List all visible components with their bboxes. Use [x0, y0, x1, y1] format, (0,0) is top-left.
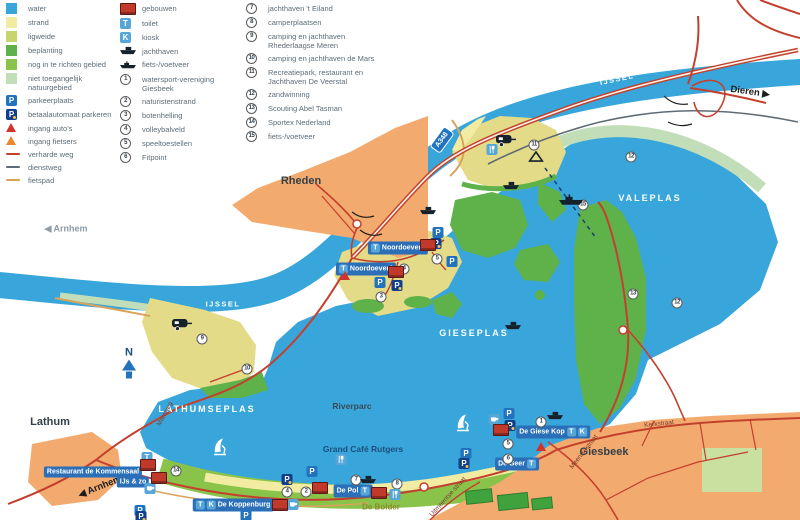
label-lathum: Lathum [30, 416, 70, 428]
north-arrow-icon [122, 360, 136, 371]
label-dieren: Dieren ▶ [730, 84, 771, 100]
parking-icon: P [375, 277, 386, 288]
chip-text: Noordoever2 [382, 245, 425, 252]
toilet-icon: T [527, 460, 536, 469]
building-icon [272, 499, 288, 511]
map-icon-windsurf [212, 438, 228, 461]
label-rheden: Rheden [281, 175, 321, 187]
map-icon-fork [390, 486, 401, 504]
map-icon-cup [288, 496, 299, 514]
map-marker-12: 12 [626, 152, 637, 163]
parking-icon: P [241, 510, 252, 520]
harbor-boat-icon [505, 321, 521, 330]
map-icon-p: P [307, 461, 318, 479]
building-icon [493, 424, 509, 436]
map-marker-6: 6 [503, 454, 514, 465]
map-marker-3: 3 [376, 292, 387, 303]
map-marker-12: 12 [672, 298, 683, 309]
windsurfer-icon [455, 414, 471, 432]
harbor-boat-icon [360, 475, 376, 484]
car-entrance-icon [536, 442, 546, 451]
kiosk-icon: K [207, 501, 216, 510]
cafe-icon [288, 499, 299, 510]
north-compass: N [122, 348, 136, 379]
map-icon-tri-red [340, 267, 350, 285]
building-icon [151, 472, 167, 484]
label-ijssel: IJSSEL [599, 71, 635, 87]
map-icon-boat [503, 177, 519, 195]
label-gieseplas: GIESEPLAS [439, 328, 509, 338]
parking-icon: P [307, 466, 318, 477]
map-marker-2: 2 [301, 487, 312, 498]
map-icon-boat [505, 317, 521, 335]
harbor-boat-icon [503, 181, 519, 190]
caravan-icon [496, 134, 516, 147]
map-icon-pa: P [459, 453, 470, 471]
map-icon-boat [420, 202, 436, 220]
toilet-icon: T [371, 244, 380, 253]
building-icon [312, 482, 328, 494]
place-chip-de-giese-kop: De Giese KopTK [516, 426, 590, 439]
map-icon-boat [360, 471, 376, 489]
map-icon-caravan [172, 318, 192, 336]
label-arnhem: ◀ Arnhem [44, 224, 87, 235]
label-riverparc: Riverparc [332, 401, 371, 411]
restaurant-icon [390, 489, 401, 500]
map-icon-bld [272, 498, 288, 516]
map-icon-p: P [241, 505, 252, 520]
car-entrance-icon [340, 271, 350, 280]
paid-parking-icon: P [459, 458, 470, 469]
harbor-boat-icon [420, 206, 436, 215]
map-icon-fork [336, 451, 347, 469]
restaurant-icon [336, 454, 347, 465]
map-icon-bld [420, 238, 436, 256]
label-ijssel: IJSSEL [206, 300, 241, 309]
chip-text: Noordoever1 [350, 266, 393, 273]
map-icon-p: P [375, 272, 386, 290]
building-icon [388, 266, 404, 278]
map-icon-ferry [559, 193, 583, 211]
map-marker-13: 13 [628, 289, 639, 300]
map-icon-pa: P [282, 469, 293, 487]
building-icon [420, 239, 436, 251]
chip-text: De Pol [337, 488, 359, 495]
label-valeplas: VALEPLAS [618, 193, 681, 203]
map-marker-10: 10 [242, 364, 253, 375]
compass-letter: N [125, 348, 133, 359]
kiosk-icon: K [578, 428, 587, 437]
windsurfer-icon [212, 438, 228, 456]
harbor-boat-icon [547, 411, 563, 420]
chip-text: IJs & zo [120, 479, 146, 486]
ferry-icon [559, 194, 583, 206]
toilet-icon: T [567, 428, 576, 437]
caravan-icon [172, 318, 192, 331]
tent-icon [529, 151, 544, 162]
toilet-icon: T [196, 501, 205, 510]
chip-text: De Giese Kop [519, 429, 565, 436]
map-marker-14: 14 [171, 466, 182, 477]
map-icon-bld [151, 471, 167, 489]
map-icon-bld [312, 481, 328, 499]
paid-parking-icon: P [136, 511, 147, 520]
parking-icon: P [447, 256, 458, 267]
map-icon-tri-red [536, 438, 546, 456]
label-uitmeentse-straat: Uitmeentse straat [428, 476, 467, 519]
building-icon [140, 459, 156, 471]
map-marker-1: 1 [536, 417, 547, 428]
chip-text: Restaurant de Kommensaal [47, 469, 139, 476]
map-icon-bld [388, 265, 404, 283]
map-icon-boat [547, 407, 563, 425]
map-icon-tent [529, 149, 544, 167]
label-kerkstraat: Kerkstraat [644, 419, 674, 429]
map-icon-bld [493, 423, 509, 441]
place-chip-de-koppenburg: TKDe Koppenburg [193, 499, 274, 512]
map-icon-pa: P [136, 506, 147, 520]
a348-road-shield: A348 [429, 126, 454, 154]
map-icon-caravan [496, 134, 516, 152]
paid-parking-icon: P [282, 474, 293, 485]
map-marker-9: 9 [197, 334, 208, 345]
map-icon-windsurf [455, 414, 471, 437]
map-icon-p: P [447, 251, 458, 269]
map-overlays: N A348 IJSSELIJSSELVALEPLASGIESEPLASLATH… [0, 0, 800, 520]
recreation-area-map: waterstrandligweidebeplantingnog in te r… [0, 0, 800, 520]
